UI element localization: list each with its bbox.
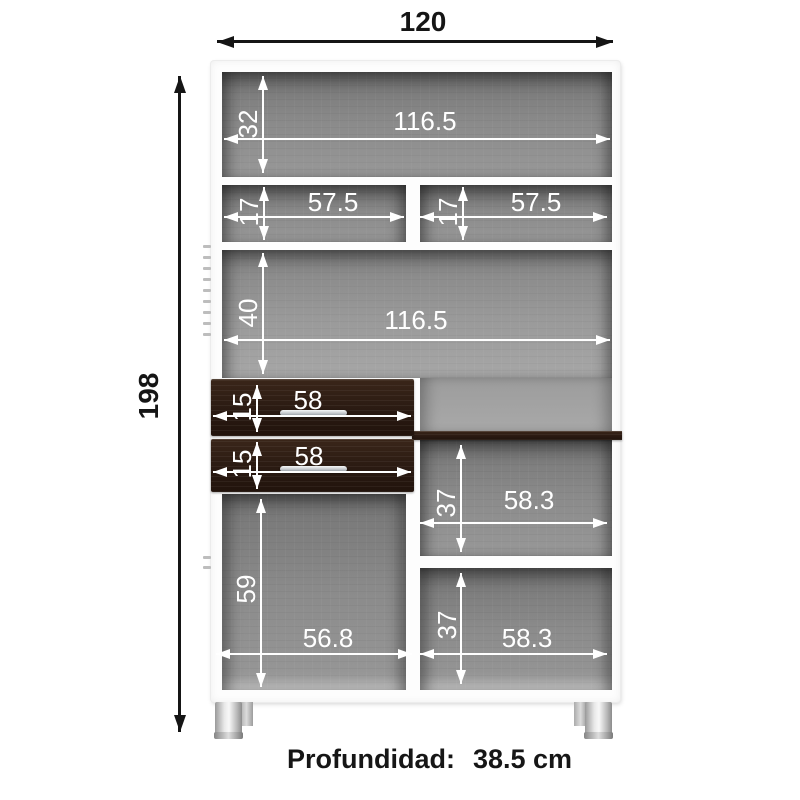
shelf-pin-hole [203,256,211,259]
dim-label-drawer2-height: 15 [229,450,255,479]
dim-arrow-drawer1-width [213,415,411,417]
countertop [412,431,622,440]
shelf-pin-hole [203,289,211,292]
dim-label-top-width: 116.5 [393,108,456,134]
dim-arrow-left-lower-width [216,653,412,655]
shelf-pin-hole [203,278,211,281]
right-leg [585,702,612,739]
dim-label-right-lower-height: 37 [434,611,460,640]
dim-label-mid-height: 40 [235,299,261,328]
dim-label-right-upper-width: 58.3 [504,487,555,513]
dim-label-drawer1-width: 58 [294,387,323,413]
dim-label-drawer2-width: 58 [295,443,324,469]
dim-label-row2-left-width: 57.5 [308,189,359,215]
furniture-dimension-diagram: 120 198 32 116.5 17 57.5 17 57.5 40 116.… [0,0,800,800]
shelf-pin-hole [203,333,211,336]
shelf-pin-hole [203,311,211,314]
dim-label-row2-left-height: 17 [236,198,262,227]
shelf-pin-hole [203,566,211,569]
depth-label: Profundidad: [287,744,455,774]
dim-arrow-mid-width [224,339,610,341]
total-height-dim-arrow [178,76,181,732]
total-height-label: 198 [135,373,163,420]
dim-arrow-right-lower-width [420,653,607,655]
dim-arrow-top-width [224,138,610,140]
depth-note: Profundidad:38.5 cm [287,745,572,775]
dim-label-mid-width: 116.5 [384,307,447,333]
shelf-pin-hole [203,300,211,303]
shelf-pin-hole [203,322,211,325]
dim-label-drawer1-height: 15 [229,393,255,422]
dim-label-top-height: 32 [235,110,261,139]
shelf-pin-hole [203,556,211,559]
depth-value: 38.5 cm [473,744,572,774]
total-width-label: 120 [400,8,447,36]
dim-arrow-right-upper-width [420,522,607,524]
dim-label-row2-right-height: 17 [435,198,461,227]
shelf-pin-hole [203,245,211,248]
shelf-pin-hole [203,267,211,270]
dim-label-left-lower-width: 56.8 [303,625,354,651]
left-leg [215,702,242,739]
dim-label-row2-right-width: 57.5 [511,189,562,215]
dim-label-left-lower-height: 59 [233,575,259,604]
dim-label-right-upper-height: 37 [433,489,459,518]
compartment-above-countertop [420,378,612,432]
dim-label-right-lower-width: 58.3 [502,625,553,651]
dim-arrow-drawer2-width [213,471,411,473]
total-width-dim-arrow [217,40,613,43]
